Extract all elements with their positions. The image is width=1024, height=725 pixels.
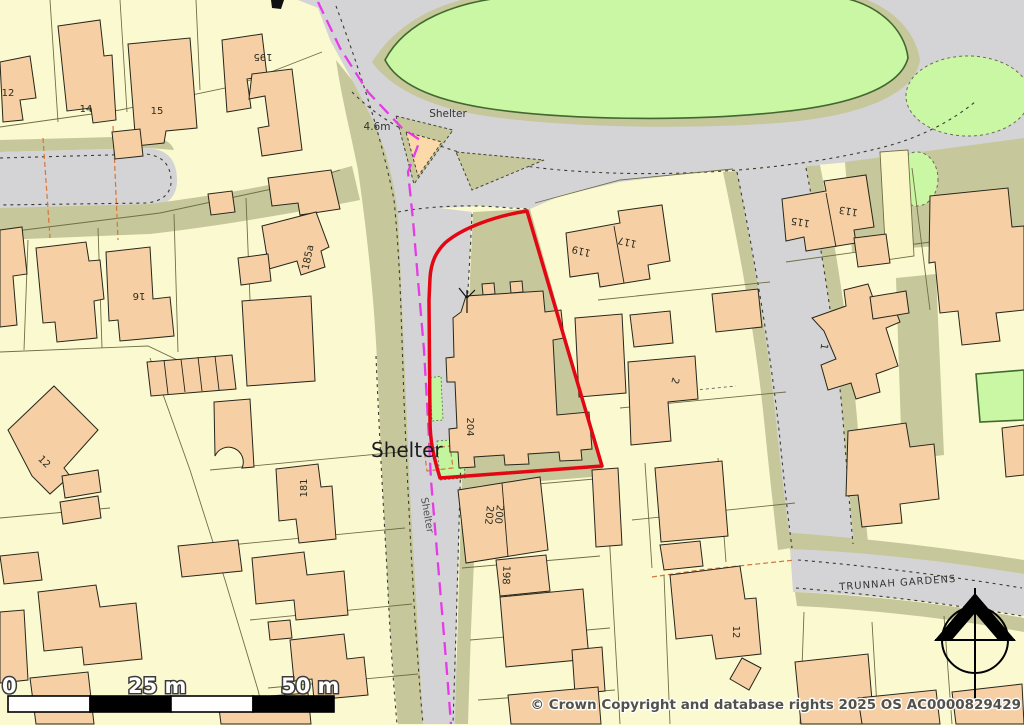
map-canvas[interactable]: 12 14 15 195 16 185a 12 181 204 200 202 … (0, 0, 1024, 725)
building (572, 647, 605, 694)
garage-row (147, 355, 236, 396)
house-number: 12 (2, 88, 15, 99)
house-number: 198 (500, 565, 512, 584)
house-number: 14 (80, 104, 93, 115)
shelter-label-top: Shelter (429, 108, 467, 120)
house-number: 195 (253, 51, 272, 62)
building (660, 541, 703, 570)
house-number: 12 (730, 626, 741, 639)
building (238, 254, 271, 285)
map-viewport[interactable]: 12 14 15 195 16 185a 12 181 204 200 202 … (0, 0, 1024, 725)
building (592, 468, 622, 547)
building (112, 129, 143, 159)
building (712, 289, 762, 332)
building (208, 191, 235, 215)
copyright-notice: © Crown Copyright and database rights 20… (531, 697, 1021, 713)
building (655, 461, 728, 542)
building (242, 296, 315, 386)
scale-label-0: 0 (2, 674, 17, 698)
scale-label-25m: 25 m (128, 674, 186, 698)
site-green-strip-1 (430, 376, 443, 421)
house-number: 204 (464, 417, 475, 436)
shelter-label-big: Shelter (371, 438, 443, 462)
scale-label-50m: 50 m (281, 674, 339, 698)
building (0, 610, 28, 683)
building (178, 540, 242, 577)
roundabout-green (385, 0, 908, 118)
building (630, 311, 673, 347)
east-green-patch (976, 370, 1024, 422)
house-number: 181 (299, 478, 310, 497)
building (1002, 425, 1024, 477)
building-204-bay (482, 283, 495, 295)
house-number: 16 (133, 290, 146, 301)
building (854, 234, 890, 267)
house-number: 15 (151, 106, 164, 117)
building (0, 552, 42, 584)
culdesac-road (0, 148, 177, 208)
building (268, 620, 292, 640)
house-number: 202 (482, 505, 495, 525)
building (575, 314, 626, 397)
spot-height-label: 4.6m (364, 121, 391, 133)
building-204-bay (510, 281, 523, 293)
